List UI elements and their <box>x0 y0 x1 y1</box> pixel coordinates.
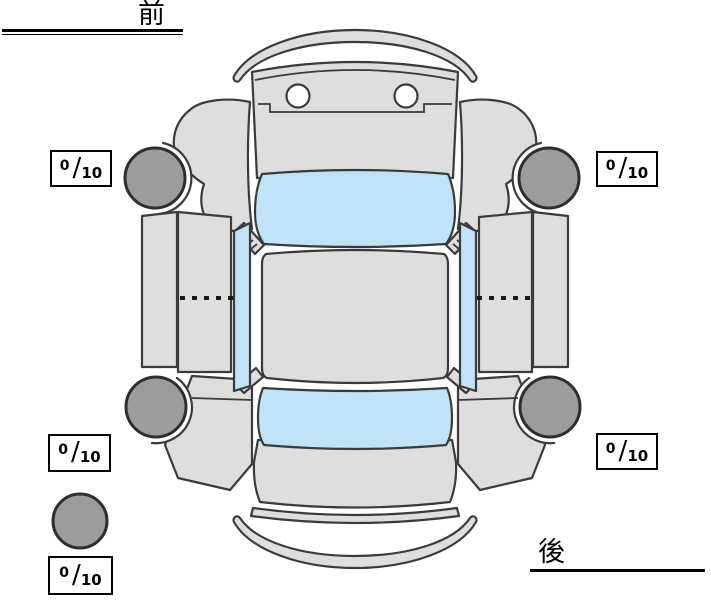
rating-max: 10 <box>627 164 648 182</box>
rear-label: 後 <box>538 539 565 566</box>
trunk-lid <box>254 440 456 508</box>
rear-window <box>258 388 452 449</box>
left-headlamp-icon <box>287 85 310 108</box>
rating-value: 0 <box>60 158 70 174</box>
car-top-view-diagram <box>0 0 711 600</box>
rating-value: 0 <box>606 158 616 174</box>
left-sill-panel <box>142 212 177 367</box>
rating-max: 10 <box>627 447 648 465</box>
front-left-tire-rating: 0 / 10 <box>50 150 112 187</box>
rating-max: 10 <box>81 164 102 182</box>
rating-value: 0 <box>606 441 616 457</box>
rear-right-tire-rating: 0 / 10 <box>596 433 658 470</box>
front-right-tire <box>519 148 579 208</box>
rear-left-tire <box>126 377 186 437</box>
front-underline-thin <box>2 34 183 35</box>
rating-separator: / <box>619 436 628 466</box>
rating-separator: / <box>72 560 81 590</box>
windshield <box>255 170 455 247</box>
vehicle-condition-diagram: 前 後 0 / 10 0 / 10 0 / 10 0 / 10 0 / 10 <box>0 0 711 600</box>
left-side-windows <box>234 223 250 391</box>
rating-separator: / <box>71 437 80 467</box>
front-label: 前 <box>138 1 165 28</box>
rating-value: 0 <box>58 442 68 458</box>
rear-panel <box>251 508 459 523</box>
left-door-panel <box>178 212 231 372</box>
rating-separator: / <box>619 153 628 183</box>
front-underline <box>2 29 183 32</box>
right-headlamp-icon <box>395 85 418 108</box>
rear-left-tire-rating: 0 / 10 <box>48 434 111 472</box>
rating-max: 10 <box>81 571 102 589</box>
spare-tire-rating: 0 / 10 <box>48 556 113 595</box>
rating-max: 10 <box>80 448 101 466</box>
roof <box>262 250 448 383</box>
rear-right-tire <box>520 377 580 437</box>
spare-tire <box>53 494 107 548</box>
right-door-panel <box>479 212 532 372</box>
rear-underline <box>530 569 705 572</box>
front-right-tire-rating: 0 / 10 <box>596 151 658 187</box>
right-sill-panel <box>533 212 568 367</box>
right-side-windows <box>460 223 476 391</box>
hood <box>252 62 458 178</box>
front-left-tire <box>125 148 185 208</box>
rating-separator: / <box>73 153 82 183</box>
rating-value: 0 <box>59 565 69 581</box>
